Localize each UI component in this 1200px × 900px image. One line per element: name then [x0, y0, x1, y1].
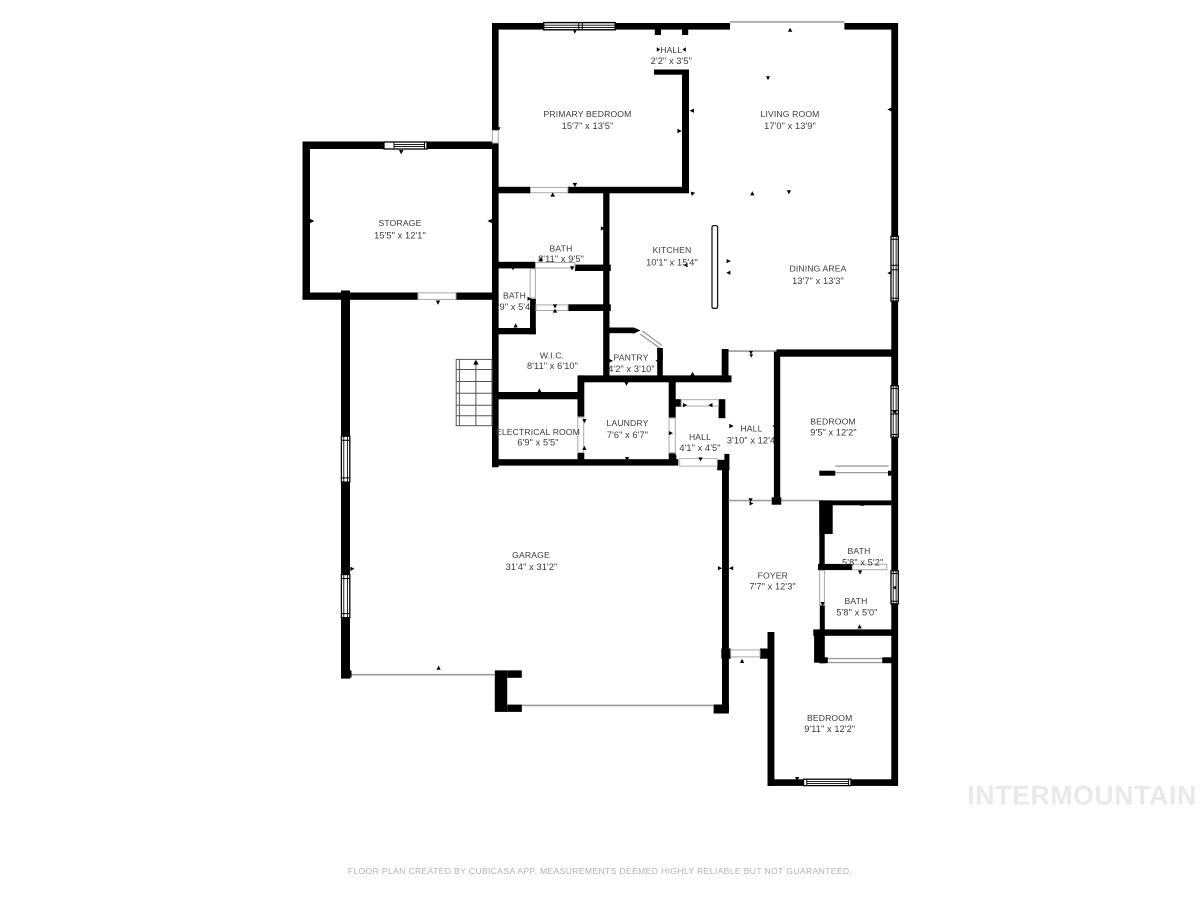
- svg-text:10'1" x 15'4": 10'1" x 15'4": [646, 258, 698, 268]
- svg-text:4'1" x 4'5": 4'1" x 4'5": [679, 443, 720, 453]
- svg-text:13'7" x 13'3": 13'7" x 13'3": [792, 276, 844, 286]
- svg-text:7'6" x 6'7": 7'6" x 6'7": [607, 430, 648, 440]
- svg-text:7'7" x 12'3": 7'7" x 12'3": [749, 581, 795, 591]
- svg-text:DINING AREA: DINING AREA: [789, 264, 846, 274]
- svg-text:GARAGE: GARAGE: [512, 550, 550, 560]
- svg-text:BEDROOM: BEDROOM: [807, 713, 852, 723]
- svg-text:9'11" x 12'2": 9'11" x 12'2": [804, 724, 855, 734]
- svg-text:STORAGE: STORAGE: [379, 218, 422, 228]
- svg-text:6'9" x 5'5": 6'9" x 5'5": [517, 438, 558, 448]
- svg-text:8'11" x 9'5": 8'11" x 9'5": [538, 254, 584, 264]
- svg-text:HALL: HALL: [660, 45, 682, 55]
- svg-text:LAUNDRY: LAUNDRY: [607, 418, 649, 428]
- svg-text:4'2" x 3'10": 4'2" x 3'10": [608, 364, 654, 374]
- svg-text:BATH: BATH: [503, 291, 526, 301]
- svg-text:BATH: BATH: [848, 546, 871, 556]
- svg-text:5'8" x 5'0": 5'8" x 5'0": [836, 608, 877, 618]
- svg-text:17'0" x 13'9": 17'0" x 13'9": [764, 121, 816, 131]
- svg-text:W.I.C.: W.I.C.: [540, 351, 564, 361]
- svg-text:PRIMARY BEDROOM: PRIMARY BEDROOM: [544, 109, 632, 119]
- svg-text:8'11" x 6'10": 8'11" x 6'10": [527, 361, 578, 371]
- svg-text:LIVING ROOM: LIVING ROOM: [761, 109, 820, 119]
- svg-text:2'2" x 3'5": 2'2" x 3'5": [651, 56, 692, 66]
- svg-text:5'8" x 5'2": 5'8" x 5'2": [842, 557, 883, 567]
- svg-text:BATH: BATH: [550, 244, 573, 254]
- svg-text:31'4" x 31'2": 31'4" x 31'2": [506, 562, 558, 572]
- svg-text:15'5" x 12'1": 15'5" x 12'1": [374, 231, 426, 241]
- svg-text:HALL: HALL: [740, 424, 762, 434]
- svg-text:FOYER: FOYER: [758, 571, 788, 581]
- svg-text:3'10" x 12'4: 3'10" x 12'4: [727, 436, 775, 446]
- svg-text:BATH: BATH: [845, 596, 868, 606]
- svg-text:HALL: HALL: [689, 432, 711, 442]
- svg-text:'9" x 5'4: '9" x 5'4: [498, 302, 531, 312]
- svg-text:ELECTRICAL ROOM: ELECTRICAL ROOM: [496, 427, 580, 437]
- svg-text:INTERMOUNTAIN: INTERMOUNTAIN: [967, 781, 1197, 811]
- svg-text:15'7" x 13'5": 15'7" x 13'5": [562, 121, 614, 131]
- svg-text:9'5" x 12'2": 9'5" x 12'2": [810, 427, 856, 437]
- svg-text:KITCHEN: KITCHEN: [653, 245, 692, 255]
- svg-text:BEDROOM: BEDROOM: [810, 416, 855, 426]
- svg-text:PANTRY: PANTRY: [614, 353, 649, 363]
- svg-text:FLOOR PLAN CREATED BY CUBICASA: FLOOR PLAN CREATED BY CUBICASA APP. MEAS…: [348, 866, 852, 876]
